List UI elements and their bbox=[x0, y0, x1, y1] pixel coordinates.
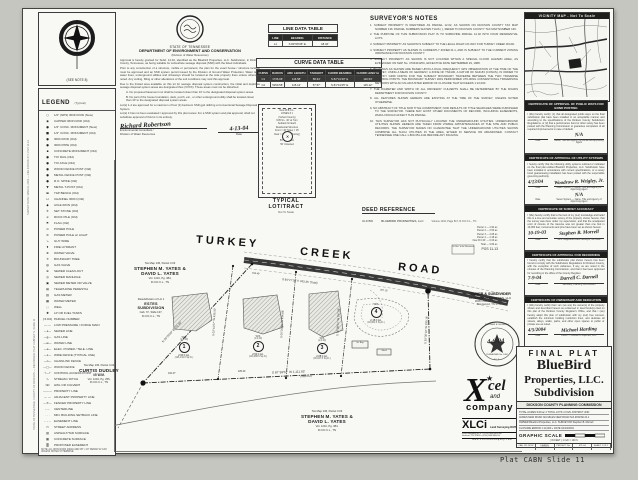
surveyors-notes-list: 1. SUBJECT PROPERTY IS IDENTIFIED AS PAR… bbox=[370, 24, 518, 138]
legend-symbol-icon: ⊣—⊢ bbox=[41, 371, 54, 375]
title-block-fields: TOTAL ACRES 9.69 ac.± TOTAL LOTS 4 CIVIL… bbox=[517, 409, 611, 433]
legend-symbol-icon: ♦ bbox=[41, 245, 54, 249]
planning-commission-label: DICKSON COUNTY PLANNING COMMISSION bbox=[517, 401, 611, 409]
certificate: CERTIFICATE OF APPROVAL FOR RECORDING I … bbox=[524, 251, 608, 296]
subdivision-name-1: BlueBird bbox=[517, 359, 611, 374]
xlci-logo: X ★ cel and company XLCi Land Surveying … bbox=[462, 376, 522, 448]
legend-symbol-icon: ——— bbox=[41, 389, 54, 393]
lot-1-number: 1 bbox=[179, 342, 190, 353]
title-block: FINAL PLAT BlueBird Properties, LLC. Sub… bbox=[516, 346, 612, 448]
legend-symbol-icon: ● bbox=[41, 179, 54, 183]
legend-symbol-icon: ◆ bbox=[41, 203, 54, 207]
legend-symbol-icon: —w— bbox=[41, 341, 54, 345]
adjoiner-yates-bottom: Tax Map 136, Parcel 3.03 STEPHEN M. YATE… bbox=[292, 410, 362, 432]
shed-label-2: Shed bbox=[377, 350, 391, 352]
legend-symbol-icon: · · · bbox=[41, 413, 54, 417]
legend-symbol-icon: ⊔ bbox=[41, 197, 54, 201]
lot-3-number: 3 bbox=[317, 343, 328, 354]
legend-symbol-icon: ○ bbox=[41, 113, 54, 117]
margin-note-1: SURVEY DATE: MARCH, 2004 — FIELD BOOK 47… bbox=[27, 215, 29, 218]
graphic-scale-label: GRAPHIC SCALE bbox=[519, 433, 562, 438]
legend-symbol-icon: ▭ bbox=[41, 425, 54, 429]
owner-subdivider-block: OWNER & SUBDIVIDER BLUEBIRD PROPERTIES, … bbox=[458, 292, 522, 306]
legend-symbol-icon: —✕— bbox=[41, 401, 54, 405]
subdivision-name-2: Properties, LLC. bbox=[517, 374, 611, 386]
lot-4: W/S 4 2.18 ± Ac. (94,961.5 Sq.Ft.) bbox=[362, 303, 390, 324]
legend-symbol-icon: ▦ bbox=[41, 299, 54, 303]
certificate-date-handwritten: 4/13/04 bbox=[528, 179, 548, 186]
dec-paragraph-3: Due to the limited area available on thi… bbox=[120, 83, 260, 90]
legend-symbol-icon: ▬ bbox=[41, 191, 54, 195]
margin-note-2: STATE OF TENNESSEE, COUNTY OF DICKSON — … bbox=[33, 430, 35, 433]
plat-cabinet-slide-label: Plat CABN Slide 11 bbox=[500, 456, 585, 464]
certificate: CERTIFICATE OF SURVEY ACCURACY I (We) he… bbox=[524, 205, 608, 250]
legend-box: LEGEND (Typical) ○ 1/2" (NPS) IRON ROD (… bbox=[38, 88, 116, 456]
line-table-title: LINE DATA TABLE bbox=[268, 24, 338, 33]
lot-2-number: 2 bbox=[253, 341, 264, 352]
state-seal-icon bbox=[175, 14, 205, 44]
curve-table-title: CURVE DATA TABLE bbox=[256, 58, 382, 68]
certificate: CERTIFICATE OF APPROVAL OF UTILITY SYSTE… bbox=[524, 154, 608, 205]
vicinity-map: VICINITY MAP - Not To Scale bbox=[524, 12, 610, 102]
shed-label: Gr. Bay bbox=[352, 342, 368, 344]
legend-symbol-icon: ● bbox=[41, 173, 54, 177]
legend-symbol-icon: (3.04) bbox=[41, 317, 54, 321]
legend-footnote: NOTE: ALL IRON RODS (NEW) ARE 5/8" x 18"… bbox=[41, 449, 113, 455]
legend-symbol-icon: ● bbox=[41, 167, 54, 171]
surveyor-seal: STEPHEN B. MORRELL TENNESSEE No. 2462 R.… bbox=[473, 320, 521, 368]
legend-symbol-icon: ⊕ bbox=[41, 269, 54, 273]
dec-date-label: Date bbox=[218, 133, 260, 136]
dec-paragraph-1: Approval is hereby granted for Subd. 12.… bbox=[120, 59, 260, 66]
certificate-date-handwritten: 7-9-04 bbox=[528, 276, 548, 283]
legend-symbol-icon: ◍ bbox=[41, 263, 54, 267]
legend-symbol-icon: ● bbox=[41, 143, 54, 147]
curve-table-row: C25259.58'115.12' 57.57'S 81°41'25" E115… bbox=[257, 82, 382, 88]
legend-symbol-icon: ● bbox=[41, 137, 54, 141]
legend-symbol-icon: —g— bbox=[41, 335, 54, 339]
legend-symbol-icon: ⚑ bbox=[41, 221, 54, 225]
legend-items: ○ 1/2" (NPS) IRON ROD (New) ◉ CAPPED IRO… bbox=[39, 111, 115, 448]
legend-symbol-icon: ⊘ bbox=[41, 233, 54, 237]
legend-symbol-icon: ▒ bbox=[41, 443, 54, 447]
vicinity-map-image bbox=[525, 19, 607, 97]
dec-signer-title-2: Division of Water Resources bbox=[120, 133, 207, 136]
legend-symbol-icon: ▪ bbox=[41, 149, 54, 153]
dec-paragraph-5: Lot(s) 4 has not been evaluated / approv… bbox=[120, 112, 260, 119]
legend-symbol-icon: —·— bbox=[41, 323, 54, 327]
division-label: (Division of Water Resources) bbox=[120, 53, 260, 57]
legend-symbol-icon: ⌀ bbox=[41, 215, 54, 219]
dec-paragraph-4: Lot(s) 1-4 are approved for a maximum of… bbox=[120, 104, 260, 111]
legend-symbol-icon: ✳ bbox=[41, 257, 54, 261]
north-note: (SEE NOTE 8) bbox=[39, 78, 115, 82]
line-table-row: L1S 84°06'36" E18.34' bbox=[269, 41, 338, 47]
certificates-column: CERTIFICATE OF APPROVAL OF PUBLIC WAYS F… bbox=[524, 100, 608, 347]
legend-symbol-icon: —x— bbox=[41, 353, 54, 357]
bearing-bottom-sub: (Total Dist.) bbox=[300, 375, 312, 378]
legend-symbol-icon: ■ bbox=[41, 131, 54, 135]
legend-symbol-icon: –·–· bbox=[41, 407, 54, 411]
legend-symbol-icon: ◉ bbox=[41, 119, 54, 123]
lot-1: W/S (1-0.00) 1 2.90 ± Ac. (126,144.0 Sq.… bbox=[170, 336, 198, 359]
adjoiner-estes: Resubdivision of Lot 1 ESTES SUBDIVISION… bbox=[122, 298, 180, 318]
legend-symbol-icon: —s— bbox=[41, 329, 54, 333]
adjoiner-yates-top: Tax Map 136, Parcel 3.03 STEPHEN M. YATE… bbox=[126, 262, 194, 284]
certificate-date-handwritten: 4/5/2004 bbox=[528, 327, 548, 334]
legend-symbol-icon: ✛ bbox=[41, 209, 54, 213]
legend-symbol-icon: ◌ bbox=[41, 305, 54, 309]
certificate-body: I hereby certify that the subdivision pl… bbox=[525, 258, 607, 277]
scale-note: ( IN FEET ) 1 inch = 100 ft. bbox=[517, 439, 611, 442]
legend-symbol-icon: ▼ bbox=[41, 185, 54, 189]
legend-title-suffix: (Typical) bbox=[74, 101, 85, 105]
legend-symbol-icon: —□— bbox=[41, 365, 54, 369]
typical-lot-center-mark: ✕ bbox=[282, 131, 293, 142]
legend-symbol-icon: – – – bbox=[41, 419, 54, 423]
dec-paragraph-2: Prior to any construction of a structure… bbox=[120, 67, 260, 81]
certificate-date-handwritten: 10-19-03 bbox=[528, 230, 548, 237]
legend-symbol-icon: ✺ bbox=[41, 311, 54, 315]
lot-2: W/S (1-0.00) 2 2.53 ± Ac. (110,088.5 Sq.… bbox=[244, 335, 272, 358]
graphic-scale-bar bbox=[565, 433, 605, 438]
certificate-body: I (We) hereby certify: (1) that all desi… bbox=[525, 111, 607, 133]
adjoiner-dudley: Tax Map 136, Parcel 4.02 CURTIS DUDLEY #… bbox=[66, 364, 132, 385]
lot-4-number: 4 bbox=[371, 307, 382, 318]
subdivision-name-3: Subdivision bbox=[517, 386, 611, 399]
legend-symbol-icon: — — bbox=[41, 395, 54, 399]
line-data-table: LINE DATA TABLE LINEBEARINGDISTANCE L1S … bbox=[268, 24, 338, 47]
lot-3: W/S (1-0.00) 3 2.08 ± Ac. (90,647.5 Sq.F… bbox=[308, 337, 336, 360]
legend-symbol-icon: ▤ bbox=[41, 287, 54, 291]
north-arrow-icon bbox=[39, 13, 115, 71]
dist-bottom-2: 225.44' bbox=[238, 370, 246, 373]
legend-symbol-icon: ⊙ bbox=[41, 227, 54, 231]
seal-hand-date: 4-6-04 bbox=[487, 338, 505, 346]
legend-symbol-icon: ∿ bbox=[41, 377, 54, 381]
line-table-rows: L1S 84°06'36" E18.34' bbox=[269, 41, 338, 47]
legend-symbol-icon: ● bbox=[41, 125, 54, 129]
curve-data-table: CURVE DATA TABLE CURVERADIUSARC LENGTHTA… bbox=[256, 58, 382, 88]
tdec-approval-block: STATE OF TENNESSEE DEPARTMENT OF ENVIRON… bbox=[120, 14, 260, 166]
legend-symbol-icon: ● bbox=[41, 161, 54, 165]
legend-symbol-icon: ▨ bbox=[41, 431, 54, 435]
final-plat-title: FINAL PLAT bbox=[517, 349, 611, 358]
north-arrow-box: (SEE NOTE 8) bbox=[38, 12, 116, 86]
legend-symbol-icon: ◎ bbox=[41, 275, 54, 279]
legend-symbol-icon: ⊗ bbox=[41, 251, 54, 255]
surveyors-notes: SURVEYOR'S NOTES 1. SUBJECT PROPERTY IS … bbox=[370, 16, 518, 140]
dec-item-b: B. No part of the house foundation, deck… bbox=[126, 96, 260, 103]
legend-symbol-icon: ⊐⊏ bbox=[41, 383, 54, 387]
legend-symbol-icon: ▥ bbox=[41, 293, 54, 297]
certificate-date-handwritten bbox=[528, 132, 548, 139]
legend-title: LEGEND bbox=[42, 100, 70, 106]
certificate-title: CERTIFICATE OF APPROVAL OF PUBLIC WAYS F… bbox=[525, 101, 607, 111]
certificate-body: I (We) hereby certify that I am (we are)… bbox=[525, 303, 607, 328]
legend-symbol-icon: ▩ bbox=[41, 437, 54, 441]
legend-symbol-icon: —o— bbox=[41, 359, 54, 363]
surveyors-notes-title: SURVEYOR'S NOTES bbox=[370, 16, 518, 22]
legend-symbol-icon: —e— bbox=[41, 347, 54, 351]
certificate: CERTIFICATE OF OWNERSHIP AND DEDICATION … bbox=[524, 296, 608, 347]
legend-symbol-icon: ↘ bbox=[41, 239, 54, 243]
curve-table-rows: C11736.06'116.58' 58.34'S 82°31'40" E116… bbox=[257, 76, 382, 88]
certificate: CERTIFICATE OF APPROVAL OF PUBLIC WAYS F… bbox=[524, 100, 608, 154]
logo-brand: XLCi bbox=[462, 419, 487, 431]
legend-item: ▒ PROPOSED EASEMENT bbox=[39, 442, 115, 448]
legend-symbol-icon: ● bbox=[41, 155, 54, 159]
removal-note: Gr. Brn. to be Removed bbox=[452, 246, 474, 249]
legend-symbol-icon: ▣ bbox=[41, 281, 54, 285]
title-block-footer: CAD. BY: RCWDRAWN: 04/13/04PROJECT No.47… bbox=[517, 443, 611, 450]
dist-bottom-1: 162.47' bbox=[168, 372, 176, 375]
certificate-body: I hereby certify that the following util… bbox=[525, 161, 607, 180]
certificate-body: I (We) hereby certify that to the best o… bbox=[525, 212, 607, 231]
plat-scan-page: { "footer_label": "Plat CABN Slide 11", … bbox=[0, 0, 638, 480]
